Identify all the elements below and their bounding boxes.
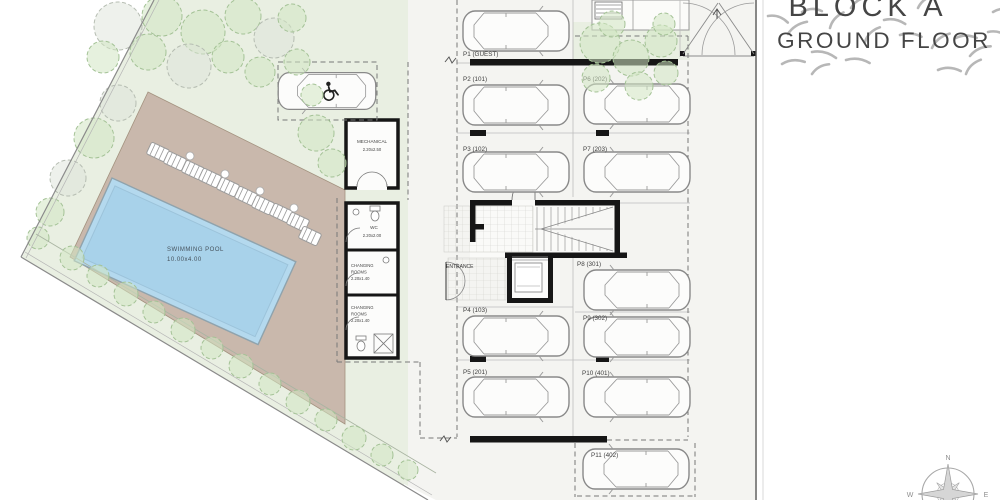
parking-label-p5: P5 (201)	[463, 369, 487, 376]
car-p1	[463, 6, 569, 56]
parking-label-p7: P7 (203)	[583, 146, 607, 153]
car-p10	[584, 372, 690, 422]
changing2-dimensions: 2.20x1.40	[351, 318, 370, 323]
compass-west-label: W	[907, 492, 914, 499]
compass-north-label: N	[945, 455, 950, 462]
parking-label-p11: P11 (402)	[591, 452, 618, 459]
parking-label-p2: P2 (101)	[463, 76, 487, 83]
wc-dimensions: 2.20x2.00	[363, 233, 382, 238]
compass-east-label: E	[984, 492, 989, 499]
changing2-line2: ROOMS	[351, 312, 367, 317]
car-p3	[463, 147, 569, 197]
changing1-line1: CHANGING	[351, 263, 374, 268]
mechanical-dimensions: 2.20x2.50	[363, 147, 382, 152]
parking-label-p4: P4 (103)	[463, 307, 487, 314]
mechanical-room: MECHANICAL 2.20x2.50	[346, 120, 398, 190]
parking-label-p10: P10 (401)	[582, 370, 610, 377]
parking-label-p8: P8 (301)	[577, 261, 601, 268]
entrance-label: ENTRANCE	[446, 264, 474, 270]
changing1-line2: ROOMS	[351, 270, 367, 275]
car-p7	[584, 147, 690, 197]
floor-plan-canvas: SWIMMING POOL 10.00x4.00 MECHANICAL 2.20…	[0, 0, 1000, 500]
wc-and-changing-rooms: WC 2.20x2.00 CHANGING ROOMS 2.20x1.40 CH…	[346, 203, 398, 358]
floor-plan: SWIMMING POOL 10.00x4.00 MECHANICAL 2.20…	[0, 0, 1000, 500]
mechanical-label: MECHANICAL	[357, 139, 388, 144]
wc-label: WC	[370, 225, 378, 230]
car-p2	[463, 80, 569, 130]
pool-dimensions: 10.00x4.00	[167, 257, 202, 263]
car-p8	[584, 265, 690, 315]
pool-label: SWIMMING POOL	[167, 247, 224, 253]
changing1-dimensions: 2.20x1.40	[351, 276, 370, 281]
car-p5	[463, 372, 569, 422]
car-p4	[463, 311, 569, 361]
elevator	[507, 255, 553, 303]
title-block-name: BLOCK A	[788, 0, 947, 23]
parking-label-p9: P9 (302)	[583, 315, 607, 322]
title-floor-name: GROUND FLOOR	[777, 28, 991, 53]
parking-label-p3: P3 (102)	[463, 146, 487, 153]
compass-rose: N W E	[907, 455, 989, 500]
title-block: BLOCK A GROUND FLOOR	[768, 0, 1000, 77]
changing2-line1: CHANGING	[351, 305, 374, 310]
parking-label-p1: P1 (GUEST)	[463, 51, 498, 58]
